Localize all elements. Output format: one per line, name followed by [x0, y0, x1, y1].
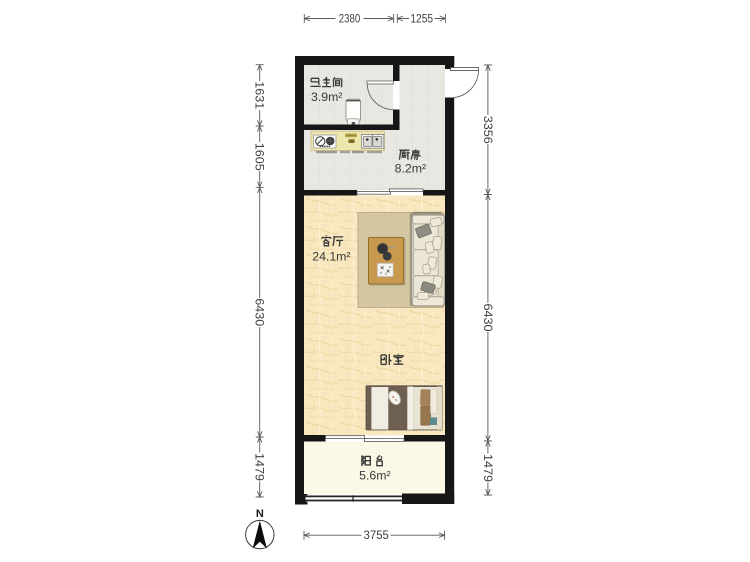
svg-text:1479: 1479: [253, 453, 267, 481]
svg-text:3356: 3356: [481, 116, 495, 144]
svg-text:N: N: [256, 508, 264, 520]
svg-text:6430: 6430: [253, 298, 267, 326]
svg-text:6430: 6430: [481, 304, 495, 332]
svg-text:24.1m²: 24.1m²: [312, 250, 350, 264]
svg-text:8.2m²: 8.2m²: [395, 161, 426, 175]
svg-text:1255: 1255: [410, 12, 433, 26]
svg-text:3.9m²: 3.9m²: [311, 90, 342, 104]
svg-text:1605: 1605: [253, 143, 267, 171]
svg-text:5.6m²: 5.6m²: [359, 469, 390, 483]
svg-text:1631: 1631: [253, 81, 267, 109]
svg-text:2380: 2380: [339, 12, 361, 26]
svg-text:3755: 3755: [364, 528, 390, 542]
svg-text:1479: 1479: [481, 454, 495, 482]
